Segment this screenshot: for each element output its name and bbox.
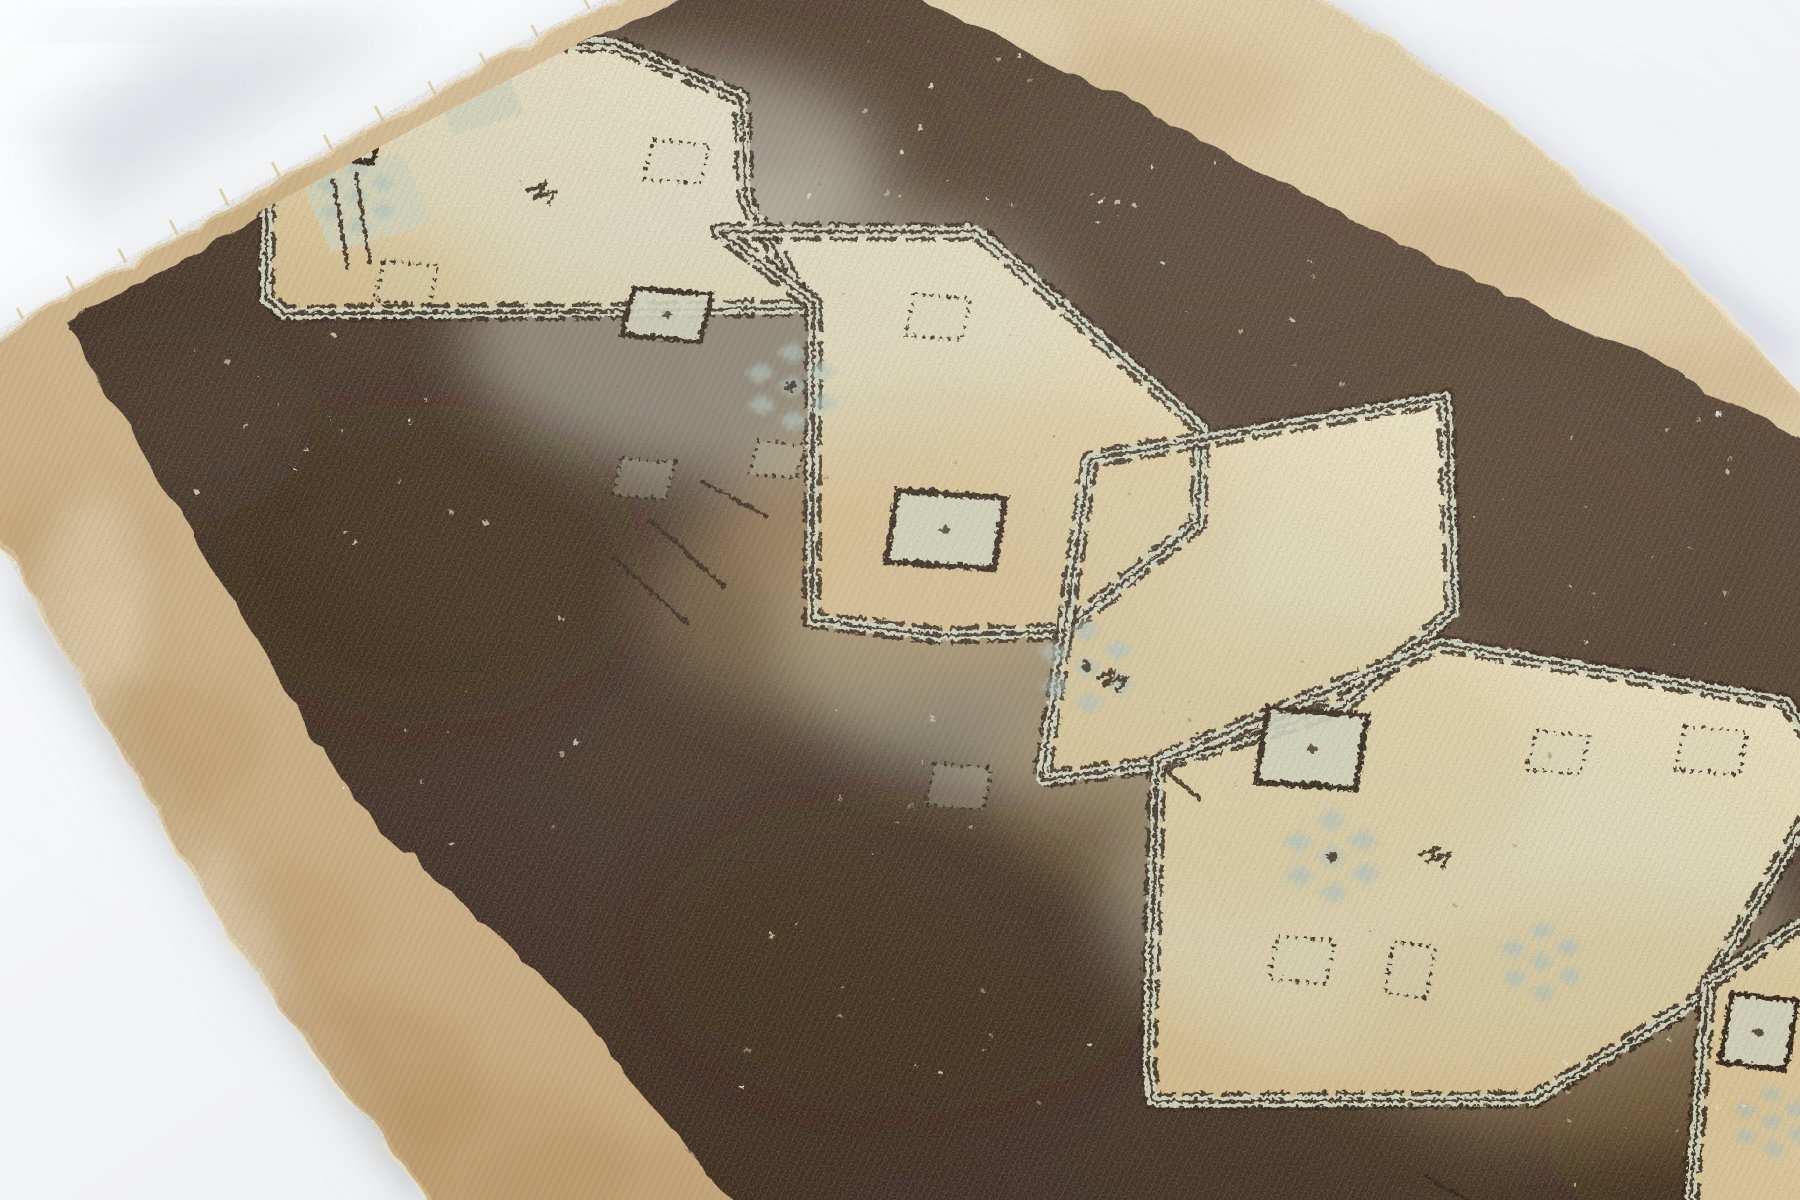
light-glow: [0, 0, 1800, 1200]
rug-photo-scene: [0, 0, 1800, 1200]
rug-photo: [0, 0, 1800, 1200]
